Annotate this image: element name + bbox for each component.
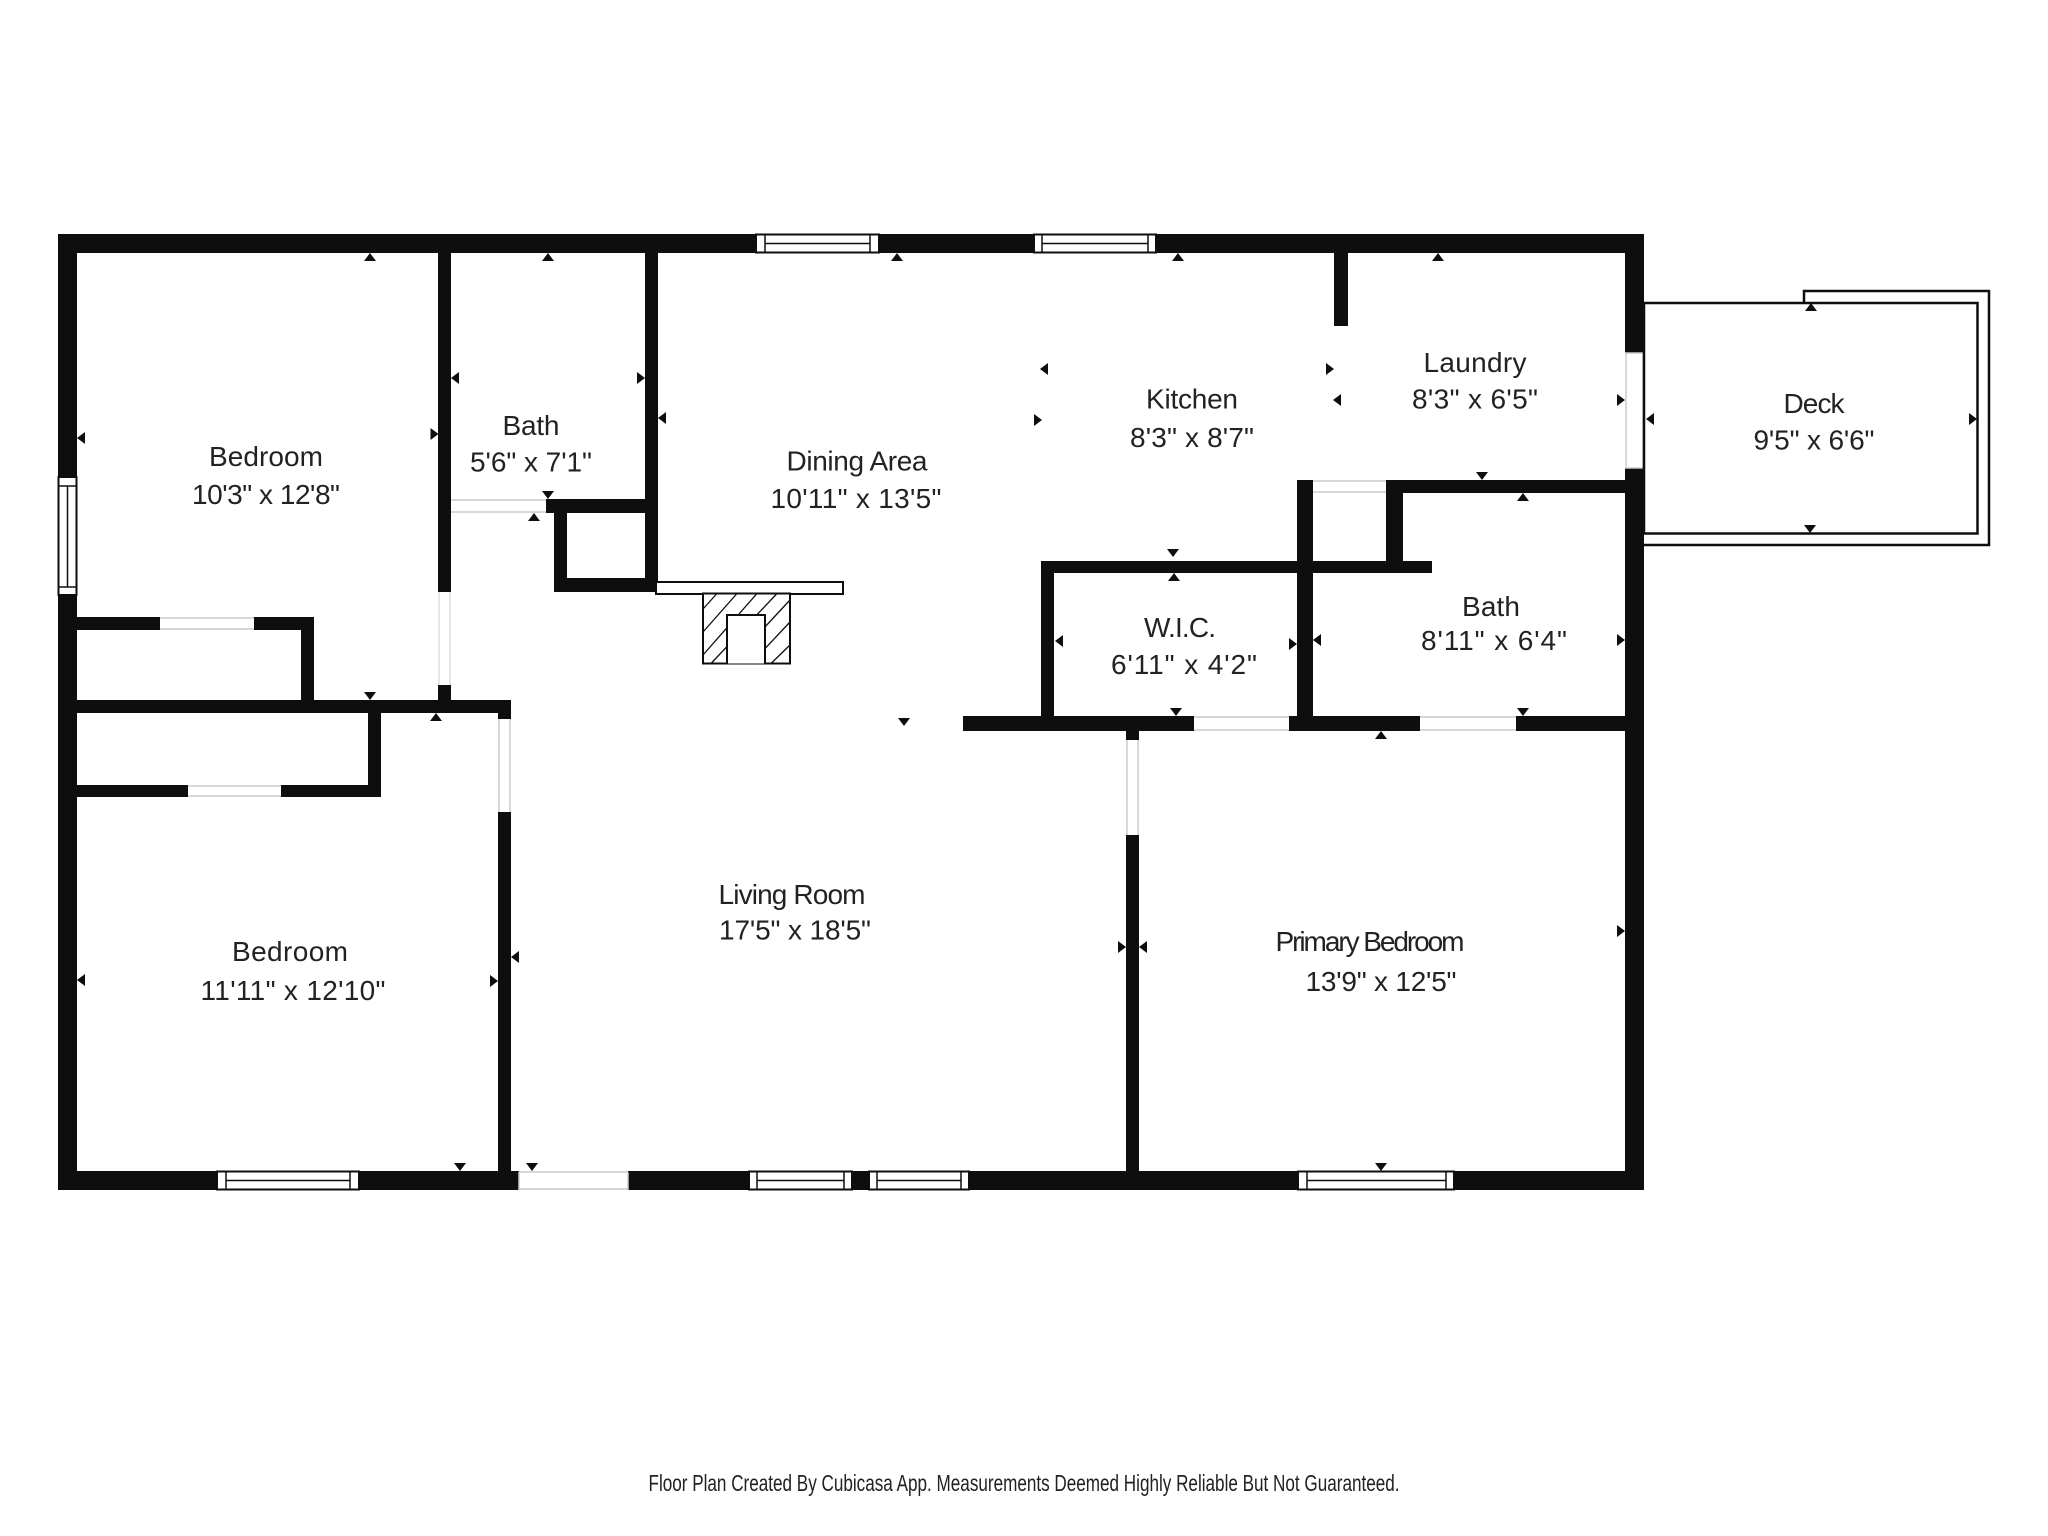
svg-text:6'11" x 4'2": 6'11" x 4'2" bbox=[1111, 649, 1257, 680]
svg-text:Dining Area: Dining Area bbox=[787, 446, 928, 477]
svg-text:8'11" x 6'4": 8'11" x 6'4" bbox=[1421, 625, 1567, 656]
svg-text:Bath: Bath bbox=[503, 410, 560, 441]
svg-text:Bedroom: Bedroom bbox=[232, 936, 348, 967]
svg-text:8'3" x 6'5": 8'3" x 6'5" bbox=[1412, 384, 1538, 415]
svg-text:5'6" x 7'1": 5'6" x 7'1" bbox=[470, 447, 592, 478]
svg-text:Floor Plan Created By Cubicasa: Floor Plan Created By Cubicasa App. Meas… bbox=[649, 1470, 1400, 1496]
svg-text:Bedroom: Bedroom bbox=[209, 441, 323, 472]
svg-text:W.I.C.: W.I.C. bbox=[1144, 612, 1216, 643]
svg-text:17'5" x 18'5": 17'5" x 18'5" bbox=[719, 915, 871, 946]
svg-text:13'9" x 12'5": 13'9" x 12'5" bbox=[1306, 966, 1457, 997]
svg-text:Primary Bedroom: Primary Bedroom bbox=[1276, 926, 1465, 957]
svg-text:Laundry: Laundry bbox=[1424, 347, 1527, 378]
svg-text:9'5" x 6'6": 9'5" x 6'6" bbox=[1754, 425, 1875, 456]
svg-text:Living Room: Living Room bbox=[719, 879, 866, 910]
svg-text:8'3" x 8'7": 8'3" x 8'7" bbox=[1130, 422, 1254, 453]
svg-text:11'11" x 12'10": 11'11" x 12'10" bbox=[201, 975, 386, 1006]
svg-text:Kitchen: Kitchen bbox=[1146, 384, 1238, 415]
svg-text:Deck: Deck bbox=[1784, 388, 1846, 419]
svg-text:Bath: Bath bbox=[1462, 591, 1520, 622]
svg-text:10'3" x 12'8": 10'3" x 12'8" bbox=[192, 479, 340, 510]
svg-text:10'11" x 13'5": 10'11" x 13'5" bbox=[771, 483, 942, 514]
